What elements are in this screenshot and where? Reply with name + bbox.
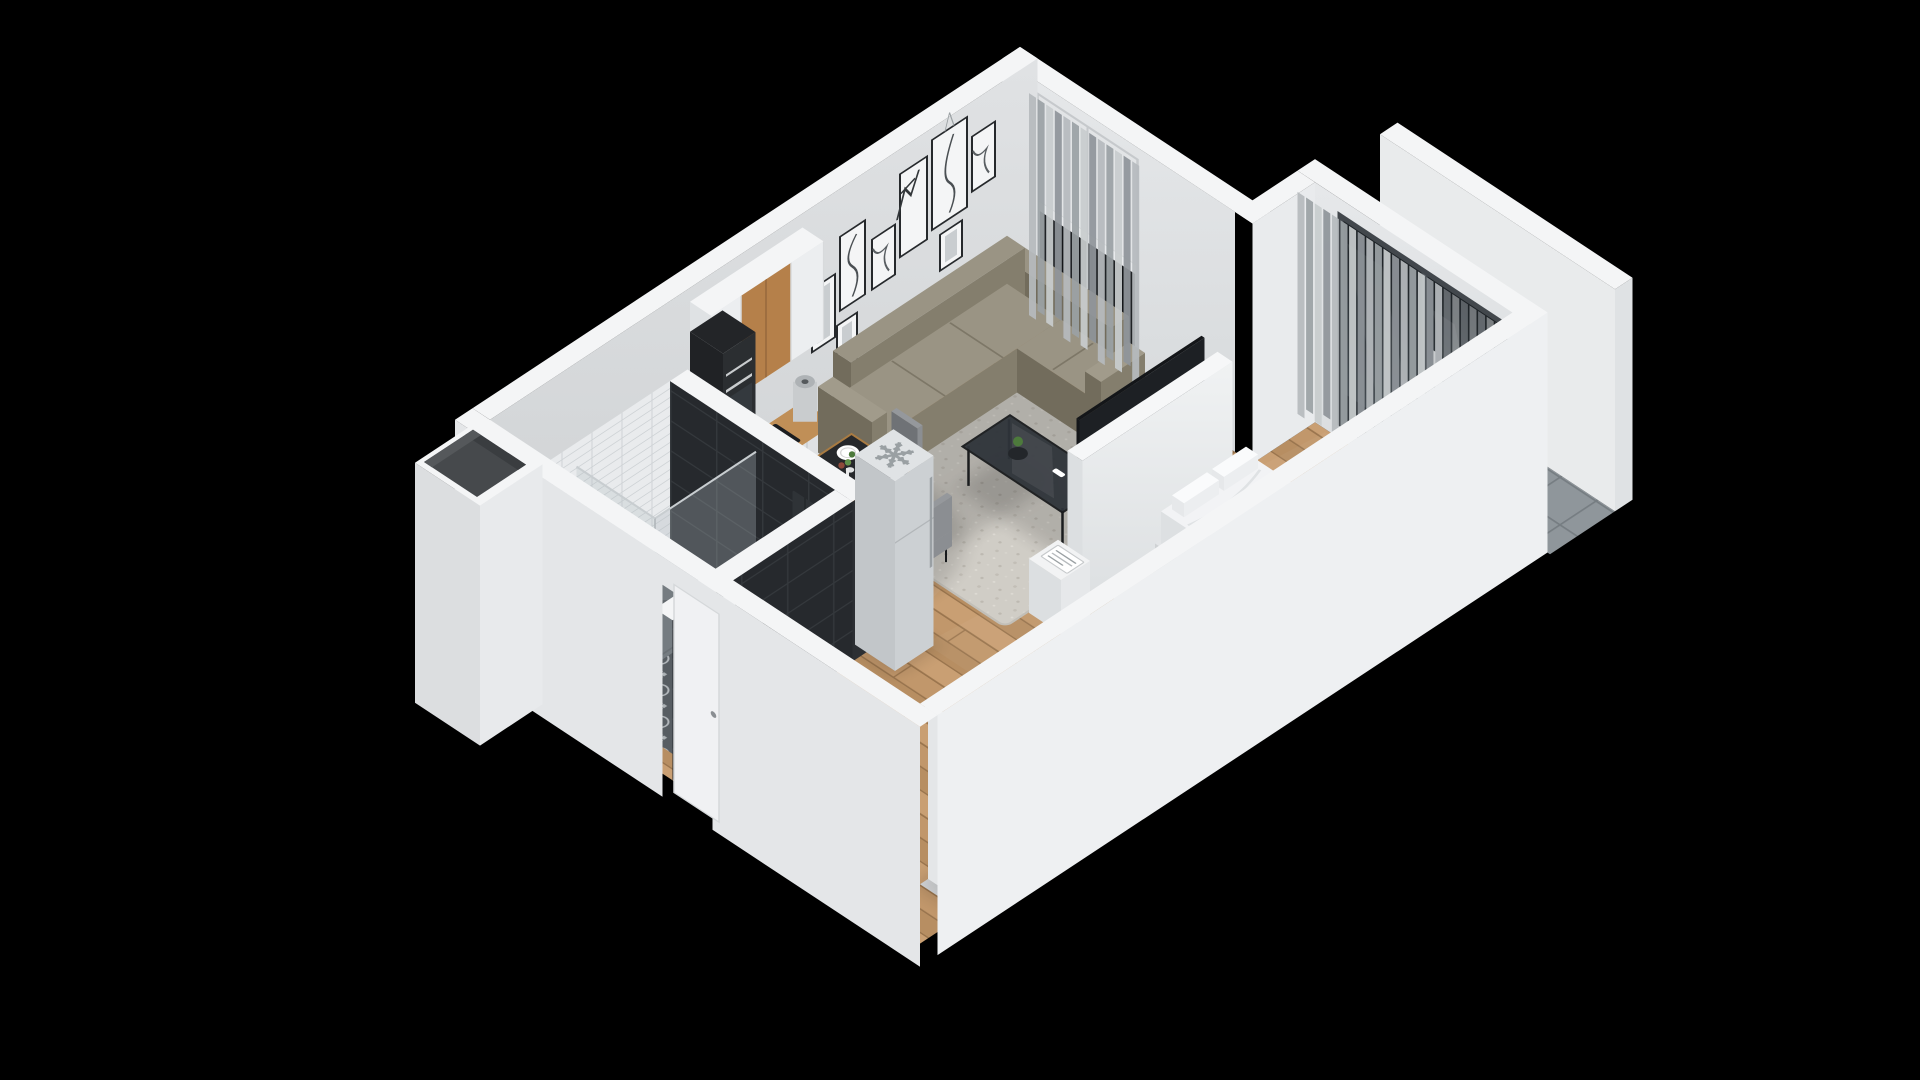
fridge	[855, 429, 934, 671]
isometric-floor-plan	[0, 0, 1920, 1080]
ventilation-shaft	[415, 422, 543, 746]
entry-door	[674, 584, 719, 822]
screenshot-canvas	[0, 0, 1920, 1080]
